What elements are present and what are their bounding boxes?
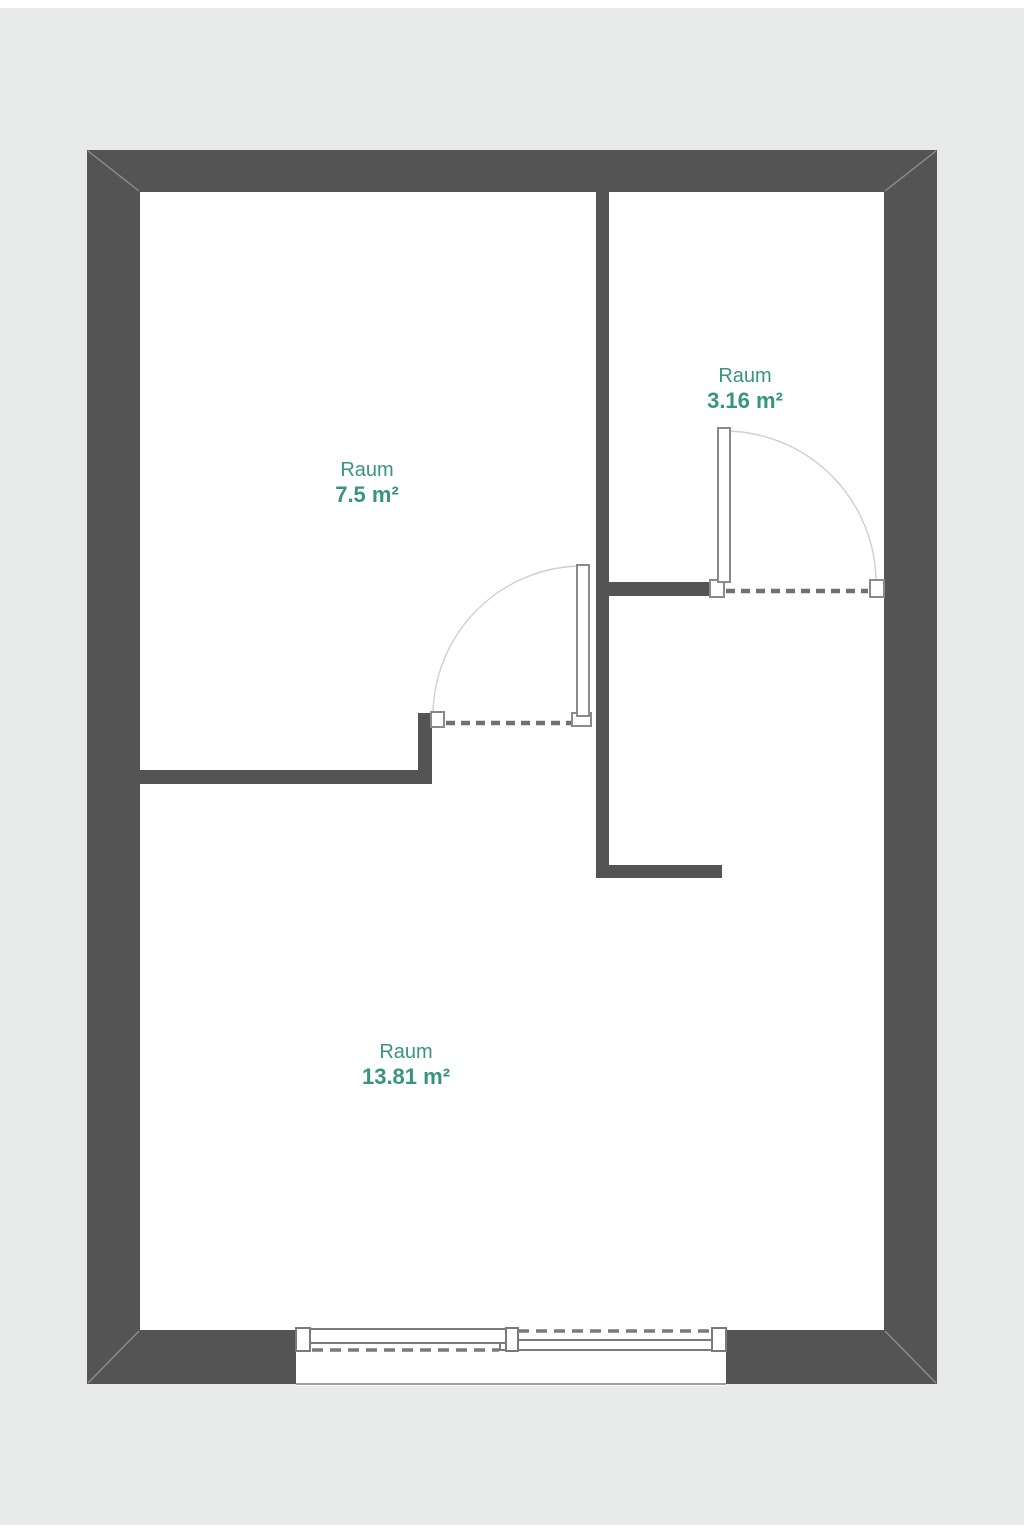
room-area: 3.16 m² (707, 388, 783, 413)
room-label-2: Raum 3.16 m² (707, 365, 783, 413)
door-leaf-room1 (577, 565, 589, 716)
outer-wall-bottom-right (726, 1330, 937, 1384)
outer-wall-bottom-left (87, 1330, 296, 1384)
room-area: 7.5 m² (335, 482, 399, 507)
room1-wall-jog (418, 713, 432, 784)
outer-wall-top (87, 150, 937, 192)
sliding-window-right-panel (500, 1340, 712, 1350)
room2-bottom-wall (609, 582, 712, 596)
room-label-1: Raum 7.5 m² (335, 459, 399, 507)
outer-wall-right (884, 150, 937, 1384)
divider-wall-stub (596, 865, 722, 878)
door-leaf-room2 (718, 428, 730, 582)
room-area: 13.81 m² (362, 1064, 450, 1089)
door-stop-room2-right (870, 580, 884, 597)
window-frame-left-end (296, 1328, 310, 1351)
room-name: Raum (707, 365, 783, 388)
room1-bottom-wall (140, 770, 432, 784)
door-stop-room1-left (431, 712, 444, 727)
outer-wall-left (87, 150, 140, 1384)
sliding-window-left-panel (310, 1329, 507, 1343)
window-frame-center (506, 1328, 518, 1351)
room-name: Raum (335, 459, 399, 482)
room-label-3: Raum 13.81 m² (362, 1041, 450, 1089)
window-frame-right-end (712, 1328, 726, 1351)
interior-floor (140, 192, 884, 1330)
floorplan-drawing (0, 0, 1024, 1536)
floorplan-page: Raum 7.5 m² Raum 3.16 m² Raum 13.81 m² (0, 0, 1024, 1536)
divider-wall (596, 192, 609, 878)
room-name: Raum (362, 1041, 450, 1064)
